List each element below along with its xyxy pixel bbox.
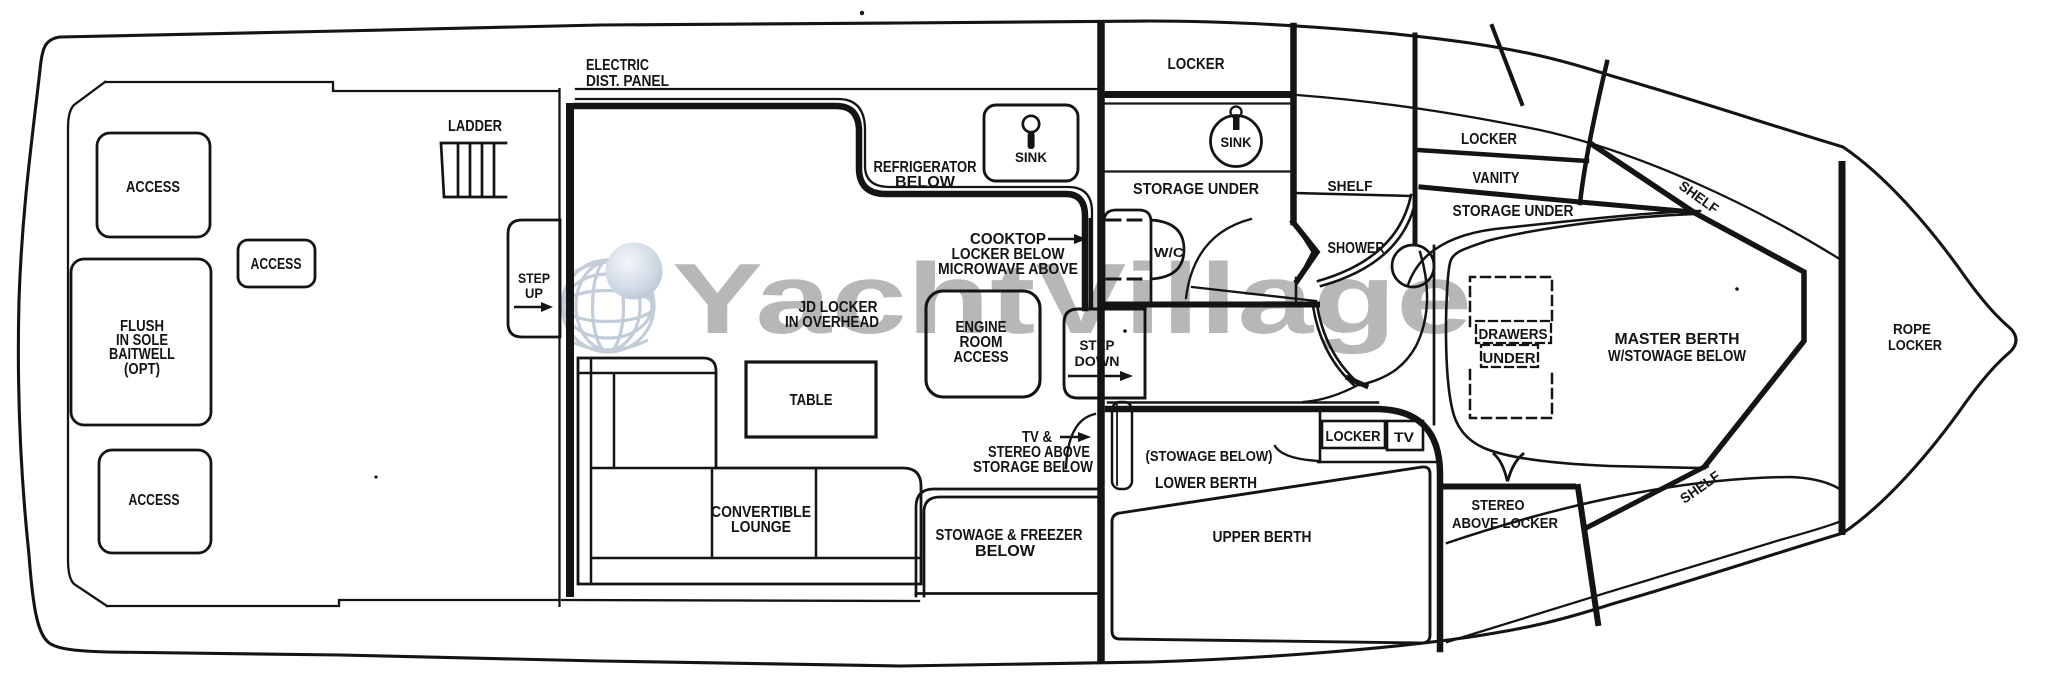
- svg-text:STORAGE UNDER: STORAGE UNDER: [1133, 181, 1259, 198]
- svg-text:IN OVERHEAD: IN OVERHEAD: [785, 314, 879, 331]
- svg-text:MASTER BERTH: MASTER BERTH: [1615, 331, 1740, 348]
- svg-text:LOCKER: LOCKER: [1168, 56, 1225, 73]
- svg-text:STEREO: STEREO: [1472, 498, 1525, 514]
- svg-text:DOWN: DOWN: [1075, 353, 1120, 369]
- svg-text:W/STOWAGE BELOW: W/STOWAGE BELOW: [1608, 348, 1746, 365]
- svg-text:ROPE: ROPE: [1893, 322, 1931, 338]
- svg-text:LOCKER: LOCKER: [1326, 429, 1381, 445]
- svg-text:LOCKER: LOCKER: [1461, 131, 1517, 148]
- svg-text:STOWAGE & FREEZER: STOWAGE & FREEZER: [936, 527, 1083, 544]
- svg-text:STEP: STEP: [1080, 337, 1115, 353]
- svg-text:SINK: SINK: [1015, 150, 1047, 165]
- svg-text:(STOWAGE BELOW): (STOWAGE BELOW): [1146, 449, 1273, 465]
- svg-text:STORAGE UNDER: STORAGE UNDER: [1453, 203, 1574, 220]
- svg-text:UP: UP: [525, 285, 543, 301]
- svg-text:TABLE: TABLE: [790, 392, 833, 409]
- svg-text:SHELF: SHELF: [1328, 179, 1373, 195]
- svg-text:ACCESS: ACCESS: [129, 492, 180, 509]
- svg-text:UNDER: UNDER: [1483, 350, 1536, 367]
- svg-text:DRAWERS: DRAWERS: [1479, 326, 1548, 343]
- svg-text:SINK: SINK: [1221, 135, 1252, 150]
- svg-text:YachtVillage: YachtVillage: [672, 243, 1472, 355]
- svg-text:ACCESS: ACCESS: [251, 256, 302, 273]
- svg-text:UPPER BERTH: UPPER BERTH: [1213, 529, 1312, 546]
- svg-text:TV: TV: [1394, 430, 1414, 445]
- svg-text:ELECTRIC: ELECTRIC: [586, 57, 649, 74]
- svg-text:SHOWER: SHOWER: [1328, 240, 1385, 257]
- svg-text:BELOW: BELOW: [975, 543, 1035, 560]
- svg-text:LOUNGE: LOUNGE: [731, 519, 791, 536]
- svg-text:LADDER: LADDER: [448, 118, 502, 135]
- svg-text:BELOW: BELOW: [895, 174, 955, 191]
- svg-text:STORAGE BELOW: STORAGE BELOW: [973, 459, 1093, 476]
- svg-text:MICROWAVE ABOVE: MICROWAVE ABOVE: [938, 261, 1078, 278]
- svg-text:ABOVE LOCKER: ABOVE LOCKER: [1452, 516, 1558, 532]
- svg-text:ACCESS: ACCESS: [126, 179, 180, 196]
- svg-text:LOWER BERTH: LOWER BERTH: [1155, 475, 1257, 492]
- svg-text:VANITY: VANITY: [1473, 170, 1521, 187]
- svg-text:LOCKER: LOCKER: [1888, 338, 1942, 354]
- svg-text:(OPT): (OPT): [124, 361, 160, 378]
- svg-text:ACCESS: ACCESS: [954, 349, 1009, 366]
- svg-text:W/C: W/C: [1154, 246, 1184, 260]
- svg-text:STEP: STEP: [518, 270, 550, 286]
- svg-text:DIST. PANEL: DIST. PANEL: [586, 73, 669, 90]
